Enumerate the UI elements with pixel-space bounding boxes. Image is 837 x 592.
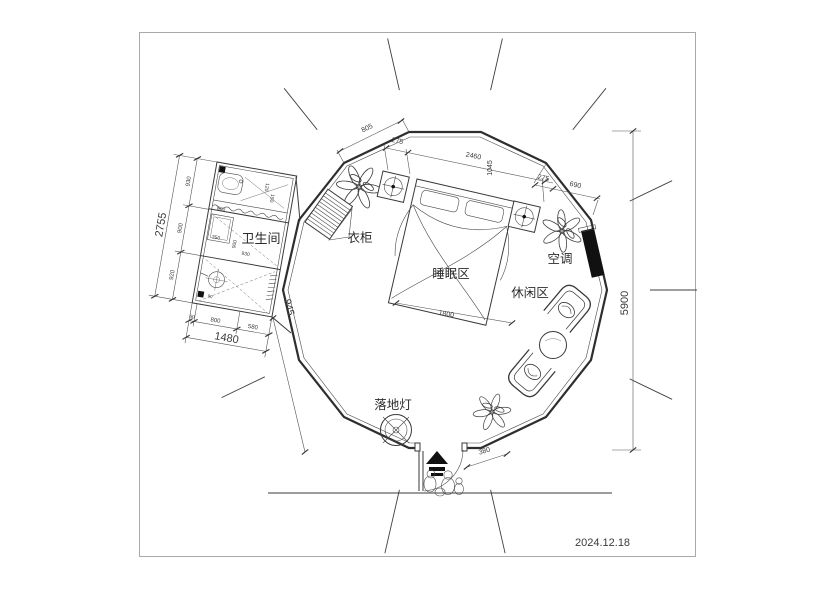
dim-5900: 5900 xyxy=(619,291,631,315)
svg-text:945: 945 xyxy=(281,298,296,317)
wardrobe-label: 衣柜 xyxy=(347,230,372,245)
dim-805: 805 xyxy=(361,123,375,134)
nightstand-lamp-icon xyxy=(377,171,409,202)
plant-icon xyxy=(468,389,515,435)
ac-unit xyxy=(578,225,606,279)
floor-plan-drawing: 805 275 2460 1045 275 690 xyxy=(0,0,837,592)
sleeping-area-label: 睡眠区 xyxy=(432,267,470,281)
floor-plan-sheet: 805 275 2460 1045 275 690 xyxy=(0,0,837,592)
bathroom-label: 卫生间 xyxy=(241,231,280,246)
svg-text:930: 930 xyxy=(185,175,193,187)
svg-text:580: 580 xyxy=(247,324,259,332)
door-jamb xyxy=(415,443,420,451)
nightstand-lamp-icon xyxy=(508,201,540,232)
side-table xyxy=(540,332,567,359)
drawing-date: 2024.12.18 xyxy=(575,537,630,549)
dim-945: 945 xyxy=(270,298,308,455)
dim-690: 690 xyxy=(569,181,582,190)
lounge-chair xyxy=(544,282,594,333)
dim-overall-height: 5900 xyxy=(612,128,641,452)
svg-text:800: 800 xyxy=(210,317,222,325)
wardrobe-hatch xyxy=(305,189,353,240)
svg-text:900: 900 xyxy=(177,222,185,234)
door-jamb xyxy=(462,443,467,451)
dim-1480: 1480 xyxy=(213,330,239,346)
dim-entry-side: 380 xyxy=(464,446,510,469)
svg-text:920: 920 xyxy=(169,269,177,281)
bathroom-block: 120 150 800 350 900 930 90 xyxy=(136,151,301,358)
floor-lamp-icon xyxy=(381,415,412,446)
bathroom-connector-wall xyxy=(296,177,300,221)
leisure-area-label: 休闲区 xyxy=(511,286,549,300)
people-icon xyxy=(424,470,464,496)
dim-275-right: 275 xyxy=(537,174,550,183)
dim-1800: 1800 xyxy=(438,310,455,320)
floor-lamp-label: 落地灯 xyxy=(374,398,412,412)
dim-2460: 2460 xyxy=(465,151,482,161)
ac-label: 空调 xyxy=(547,252,572,266)
dim-2755: 2755 xyxy=(153,212,169,238)
dim-1045: 1045 xyxy=(487,160,494,176)
